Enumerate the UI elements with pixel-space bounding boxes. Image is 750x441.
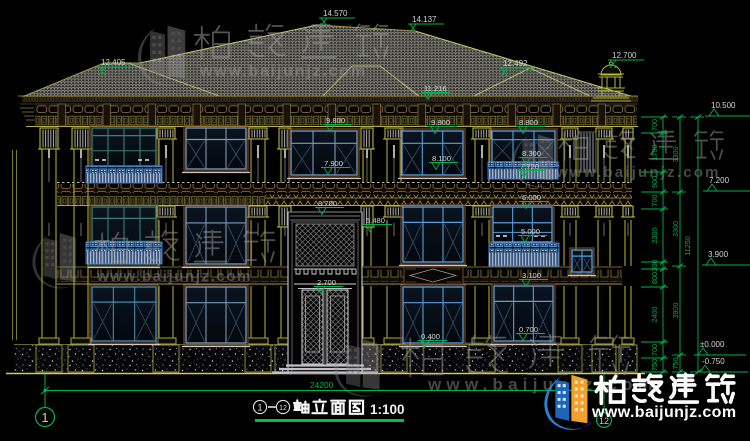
svg-text:1: 1 xyxy=(257,403,262,413)
svg-text:2.700: 2.700 xyxy=(317,278,336,287)
svg-text:14.137: 14.137 xyxy=(412,15,437,24)
svg-text:9.800: 9.800 xyxy=(431,118,450,127)
svg-text:www.baijunjz.com: www.baijunjz.com xyxy=(555,164,721,181)
svg-text:-0.750: -0.750 xyxy=(702,357,725,366)
svg-text:5.000: 5.000 xyxy=(521,227,540,236)
svg-text:6.000: 6.000 xyxy=(522,193,541,202)
svg-text:700: 700 xyxy=(650,195,659,207)
svg-text:3900: 3900 xyxy=(671,303,680,319)
svg-text:www.baijunjz.com: www.baijunjz.com xyxy=(199,63,367,80)
svg-text:11.216: 11.216 xyxy=(424,84,447,93)
svg-text:8.800: 8.800 xyxy=(519,118,538,127)
svg-text:11250: 11250 xyxy=(683,236,692,255)
svg-text:www.baijunjz.com: www.baijunjz.com xyxy=(96,268,252,285)
svg-text:800: 800 xyxy=(650,272,659,284)
svg-text:900: 900 xyxy=(650,176,659,188)
svg-text:2400: 2400 xyxy=(650,307,659,323)
svg-text:0.400: 0.400 xyxy=(421,332,440,341)
svg-text:750: 750 xyxy=(671,358,680,370)
svg-text:7.900: 7.900 xyxy=(324,159,343,168)
svg-text:9.800: 9.800 xyxy=(326,116,345,125)
svg-text:3300: 3300 xyxy=(671,221,680,237)
svg-text:±0.000: ±0.000 xyxy=(700,340,725,349)
svg-text:1700: 1700 xyxy=(650,145,659,161)
svg-text:750: 750 xyxy=(650,359,659,371)
svg-text:www.baijunjz.com: www.baijunjz.com xyxy=(591,404,737,421)
svg-text:8.300: 8.300 xyxy=(522,149,541,158)
svg-text:2300: 2300 xyxy=(650,228,659,244)
svg-text:14.570: 14.570 xyxy=(323,9,348,18)
svg-text:1: 1 xyxy=(41,410,48,425)
svg-text:12.700: 12.700 xyxy=(612,51,637,60)
svg-text:700: 700 xyxy=(650,119,659,131)
svg-text:5.480: 5.480 xyxy=(366,216,385,225)
svg-text:0.700: 0.700 xyxy=(519,325,538,334)
svg-text:12: 12 xyxy=(279,405,287,412)
svg-text:300: 300 xyxy=(650,260,659,272)
svg-text:8.700: 8.700 xyxy=(318,199,337,208)
svg-text:7.720: 7.720 xyxy=(520,162,539,171)
svg-text:12.492: 12.492 xyxy=(503,59,528,68)
svg-text:3.100: 3.100 xyxy=(522,271,541,280)
svg-text:10.500: 10.500 xyxy=(711,101,736,110)
svg-text:700: 700 xyxy=(650,344,659,356)
svg-text:24200: 24200 xyxy=(310,380,334,390)
svg-text:1:100: 1:100 xyxy=(370,402,405,417)
svg-text:3300: 3300 xyxy=(671,147,680,163)
svg-text:8.100: 8.100 xyxy=(432,154,451,163)
svg-text:12.405: 12.405 xyxy=(101,58,126,67)
